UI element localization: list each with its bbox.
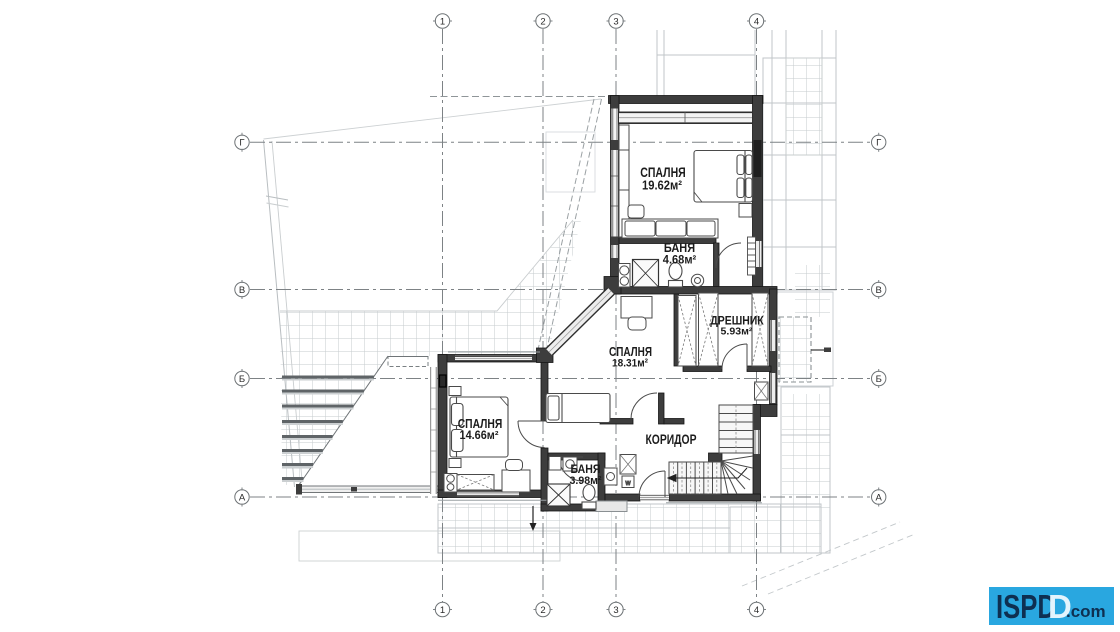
svg-text:3.98м²: 3.98м² (570, 475, 602, 487)
svg-text:Г: Г (876, 138, 881, 149)
svg-text:3: 3 (613, 605, 618, 616)
svg-text:2: 2 (540, 16, 545, 27)
svg-text:4: 4 (754, 605, 759, 616)
svg-text:2: 2 (540, 605, 545, 616)
svg-text:Г: Г (239, 138, 244, 149)
svg-text:18.31м²: 18.31м² (612, 358, 648, 370)
svg-text:4.68м²: 4.68м² (663, 253, 696, 267)
svg-text:14.66м²: 14.66м² (460, 430, 499, 442)
svg-text:А: А (876, 492, 883, 503)
svg-text:5.93м²: 5.93м² (721, 326, 753, 338)
svg-text:В: В (876, 285, 882, 296)
svg-text:1: 1 (440, 16, 445, 27)
svg-text:Б: Б (239, 374, 245, 385)
svg-text:.com: .com (1066, 602, 1106, 621)
svg-text:В: В (239, 285, 245, 296)
svg-text:А: А (239, 492, 246, 503)
svg-text:4: 4 (754, 16, 759, 27)
svg-text:КОРИДОР: КОРИДОР (646, 432, 697, 447)
svg-text:ISPD: ISPD (996, 588, 1056, 625)
svg-text:19.62м²: 19.62м² (642, 179, 682, 193)
svg-text:СПАЛНЯ: СПАЛНЯ (458, 416, 503, 431)
svg-text:w: w (624, 480, 631, 487)
svg-text:1: 1 (440, 605, 445, 616)
svg-text:Б: Б (876, 374, 882, 385)
svg-text:3: 3 (613, 16, 618, 27)
